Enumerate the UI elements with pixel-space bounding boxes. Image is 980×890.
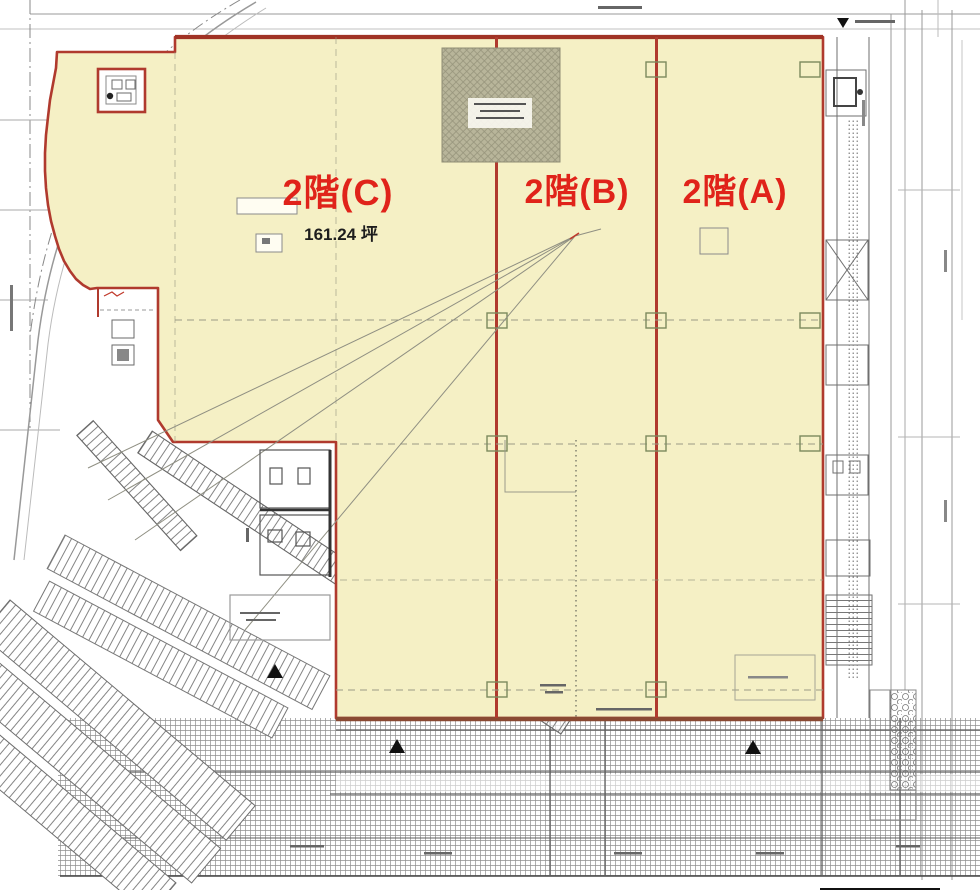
down-triangle-icon (837, 18, 849, 28)
stair-cutout-fixtures (100, 292, 156, 365)
core-stair-rungs (826, 595, 872, 665)
service-core (826, 14, 916, 820)
zone-b-label: 2階(B) (524, 173, 629, 211)
hatched-shaft-box (442, 48, 560, 162)
floorplan-page: 2階(C) 161.24 坪 2階(B) 2階(A) (0, 0, 980, 890)
zone-c-label: 2階(C) (283, 172, 394, 213)
floorplan-canvas: 2階(C) 161.24 坪 2階(B) 2階(A) (0, 0, 980, 890)
zone-c-area: 161.24 坪 (304, 225, 378, 244)
zone-a-label: 2階(A) (682, 173, 787, 211)
machine-room (98, 69, 145, 112)
